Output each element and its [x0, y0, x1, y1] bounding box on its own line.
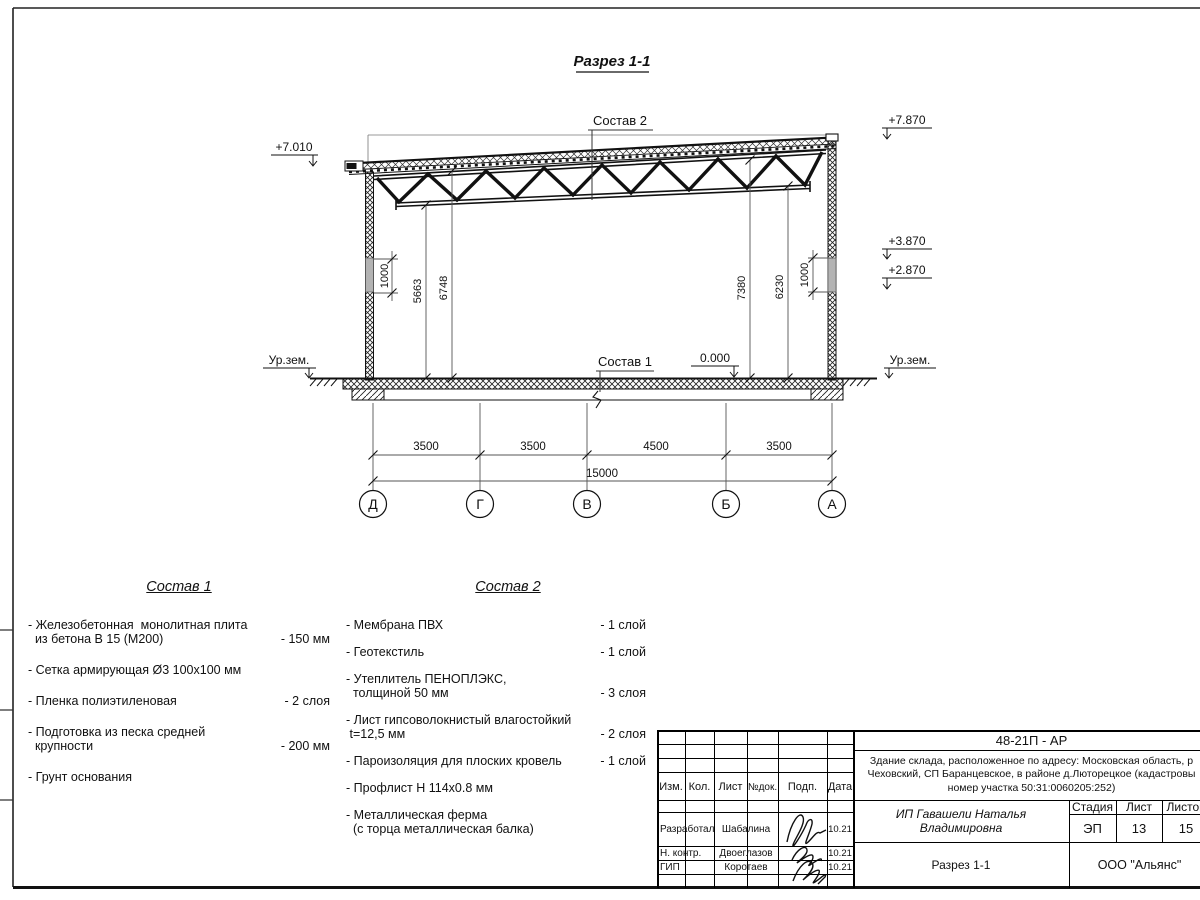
dim-6230: 6230 — [774, 275, 786, 299]
role-label: ГИП — [660, 860, 714, 874]
bottom-dimensions: 3500 3500 4500 3500 15000 — [369, 403, 837, 490]
dim-5663: 5663 — [412, 279, 424, 303]
col-ndok: №док. — [747, 774, 778, 800]
list-item: - Геотекстиль - 1 слой — [346, 645, 646, 659]
item-value: - 1 слой — [592, 618, 646, 632]
left-wall-window-band — [366, 258, 374, 292]
title-block: Изм. Кол. Лист №док. Подп. Дата Разработ… — [657, 730, 1200, 888]
stage-value: ЭП — [1069, 814, 1116, 842]
axis-A: А — [827, 496, 837, 512]
sheet-value: 13 — [1116, 814, 1162, 842]
axis-D: Д — [368, 496, 378, 512]
item-value: - 2 слоя — [593, 727, 646, 741]
dim-span-3: 4500 — [643, 441, 669, 453]
left-footing — [352, 389, 384, 400]
right-wall-window-band — [828, 258, 836, 292]
axis-B: Б — [721, 496, 730, 512]
sostav1-list: Состав 1 - Железобетонная монолитная пли… — [28, 580, 330, 801]
list-item: - Мембрана ПВХ - 1 слой — [346, 618, 646, 632]
sostav2-list: Состав 2 - Мембрана ПВХ - 1 слой - Геоте… — [346, 580, 646, 849]
item-value: - 1 слой — [592, 645, 646, 659]
col-kol: Кол. — [685, 774, 714, 800]
item-value: - 150 мм — [273, 632, 330, 646]
item-text: - Металлическая ферма (с торца металличе… — [346, 808, 534, 836]
elev-right-top: +7.870 — [888, 113, 925, 127]
axis-bubbles: Д Г В Б А — [360, 491, 846, 518]
desc-line-3: номер участка 50:31:0060205:252) — [948, 782, 1116, 796]
sheets-value: 15 — [1162, 814, 1200, 842]
col-izm: Изм. — [657, 774, 685, 800]
item-text: - Железобетонная монолитная плита из бет… — [28, 618, 247, 646]
sostav2-title: Состав 2 — [370, 580, 646, 594]
view-title: Разрез 1-1 — [573, 53, 650, 72]
project-description: Здание склада, расположенное по адресу: … — [853, 751, 1200, 799]
role-date: 10.21 — [827, 846, 853, 860]
dim-left-wall-1000: 1000 — [379, 264, 391, 288]
floor-slab-hatch — [343, 379, 843, 389]
elev-right-low: +2.870 — [888, 263, 925, 277]
item-value: - 1 слой — [592, 754, 646, 768]
item-text: - Утеплитель ПЕНОПЛЭКС, толщиной 50 мм — [346, 672, 506, 700]
col-podp: Подп. — [778, 774, 827, 800]
list-item: - Железобетонная монолитная плита из бет… — [28, 618, 330, 646]
sostav2-leader-label: Состав 2 — [593, 113, 647, 128]
view-title-text: Разрез 1-1 — [573, 53, 650, 70]
list-item: - Сетка армирующая Ø3 100х100 мм — [28, 663, 330, 677]
ground-label-left: Ур.зем. — [269, 353, 310, 367]
walls — [366, 134, 839, 380]
item-text: - Лист гипсоволокнистый влагостойкий t=1… — [346, 713, 571, 741]
sheets-label: Листов — [1162, 800, 1200, 814]
stage-label: Стадия — [1069, 800, 1116, 814]
elev-right-mid: +3.870 — [888, 234, 925, 248]
dim-6748: 6748 — [438, 276, 450, 300]
sheet-label: Лист — [1116, 800, 1162, 814]
list-item: - Металлическая ферма (с торца металличе… — [346, 808, 646, 836]
list-item: - Пароизоляция для плоских кровель - 1 с… — [346, 754, 646, 768]
list-item: - Профлист Н 114х0.8 мм — [346, 781, 646, 795]
drawing-sheet: { "section": { "title": "Разрез 1-1", "s… — [0, 0, 1200, 900]
desc-line-2: Чеховский, СП Баранцевское, в районе д.Л… — [868, 768, 1196, 782]
list-item: - Лист гипсоволокнистый влагостойкий t=1… — [346, 713, 646, 741]
role-name: Коротаев — [714, 860, 778, 874]
elev-left-top: +7.010 — [275, 140, 312, 154]
dim-right-wall-1000: 1000 — [799, 263, 811, 287]
item-value: - 3 слоя — [593, 686, 646, 700]
margin-ticks — [0, 630, 13, 800]
item-text: - Пленка полиэтиленовая — [28, 694, 177, 708]
elev-zero: 0.000 — [700, 351, 730, 365]
sheet-name: Разрез 1-1 — [853, 842, 1069, 888]
floor — [310, 379, 877, 409]
right-wall-cap — [826, 134, 838, 141]
col-data: Дата — [827, 774, 853, 800]
doc-code: 48-21П - АР — [853, 730, 1200, 750]
right-footing — [811, 389, 843, 400]
desc-line-1: Здание склада, расположенное по адресу: … — [870, 755, 1193, 769]
dim-span-4: 3500 — [766, 441, 792, 453]
col-list: Лист — [714, 774, 747, 800]
list-item: - Утеплитель ПЕНОПЛЭКС, толщиной 50 мм -… — [346, 672, 646, 700]
organization: ООО "Альянс" — [1069, 842, 1200, 888]
item-text: - Мембрана ПВХ — [346, 618, 443, 632]
item-text: - Сетка армирующая Ø3 100х100 мм — [28, 663, 241, 677]
role-date: 10.21 — [827, 860, 853, 874]
sostav1-leader-label: Состав 1 — [598, 354, 652, 369]
list-item: - Подготовка из песка средней крупности … — [28, 725, 330, 753]
item-value: - 2 слоя — [277, 694, 330, 708]
axis-G: Г — [476, 496, 484, 512]
role-name: Шабалина — [714, 818, 778, 840]
item-text: - Пароизоляция для плоских кровель — [346, 754, 562, 768]
dim-total: 15000 — [586, 468, 618, 480]
client-name: ИП Гавашели Наталья Владимировна — [853, 800, 1069, 842]
item-value: - 200 мм — [273, 739, 330, 753]
role-label: Разработал — [660, 818, 714, 840]
item-text: - Грунт основания — [28, 770, 132, 784]
roof-left-cap-fill — [347, 163, 357, 169]
role-name: Двоеглазов — [714, 846, 778, 860]
axis-V: В — [582, 496, 591, 512]
list-item: - Грунт основания — [28, 770, 330, 784]
item-text: - Геотекстиль — [346, 645, 424, 659]
sostav1-title: Состав 1 — [28, 580, 330, 594]
role-date: 10.21 — [827, 820, 853, 838]
ground-label-right: Ур.зем. — [890, 353, 931, 367]
dim-span-2: 3500 — [520, 441, 546, 453]
dim-7380: 7380 — [736, 276, 748, 300]
item-text: - Подготовка из песка средней крупности — [28, 725, 205, 753]
dim-span-1: 3500 — [413, 441, 439, 453]
role-label: Н. контр. — [660, 846, 714, 860]
item-text: - Профлист Н 114х0.8 мм — [346, 781, 493, 795]
list-item: - Пленка полиэтиленовая - 2 слоя — [28, 694, 330, 708]
